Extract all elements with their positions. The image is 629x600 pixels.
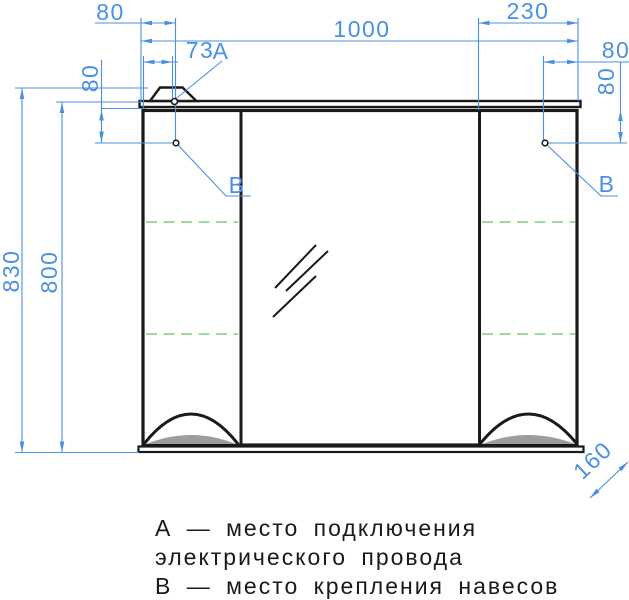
dim-80-top-right-h: 80: [602, 37, 629, 63]
arrowhead: [99, 110, 104, 121]
dim-1000: 1000: [333, 16, 390, 42]
point-a-marker: [172, 99, 178, 105]
arrowhead: [165, 21, 176, 26]
dim-800: 800: [36, 251, 62, 294]
mirror-cabinet-drawing: 80 73 A 1000 230 80 80 80 830 800 160 B …: [0, 0, 629, 600]
technical-drawing-canvas: 80 73 A 1000 230 80 80 80 830 800 160 B …: [0, 0, 629, 600]
point-b-right-label: B: [599, 171, 616, 197]
dim-230: 230: [507, 0, 550, 24]
arrowhead: [544, 60, 555, 65]
arrowhead: [162, 60, 173, 65]
arrowhead: [567, 60, 578, 65]
arrowhead: [20, 442, 25, 453]
point-a-label: A: [213, 38, 230, 64]
arrowhead: [20, 88, 25, 99]
cabinet-outline: [139, 88, 584, 453]
legend-line-3: В — место крепления навесов: [155, 573, 559, 599]
legend: А — место подключения электрического про…: [155, 515, 559, 599]
arrowhead: [144, 60, 155, 65]
top-panel: [140, 101, 581, 107]
arrowhead: [618, 132, 623, 143]
bottom-panel: [139, 447, 584, 453]
legend-line-1: А — место подключения: [155, 515, 477, 541]
dim-80-top-right-v: 80: [593, 67, 619, 96]
point-b-left-label: B: [229, 172, 246, 198]
dim-80-left-v: 80: [77, 64, 103, 93]
arrowhead: [99, 132, 104, 143]
dim-830: 830: [0, 250, 24, 293]
arrowhead: [60, 442, 65, 453]
arrowhead: [141, 39, 152, 44]
leader-point-a: [176, 61, 223, 99]
point-b-right-marker: [542, 140, 548, 146]
arrowhead: [141, 21, 152, 26]
legend-line-2: электрического провода: [155, 544, 464, 570]
arrowhead: [60, 102, 65, 113]
point-b-left-marker: [173, 140, 179, 146]
arrowhead: [567, 39, 578, 44]
dim-73: 73: [186, 37, 215, 63]
cabinet-body: [143, 111, 577, 446]
arrowhead: [479, 21, 490, 26]
dim-80-top-left: 80: [96, 0, 125, 25]
arrowhead: [618, 110, 623, 121]
arrowhead: [567, 21, 578, 26]
